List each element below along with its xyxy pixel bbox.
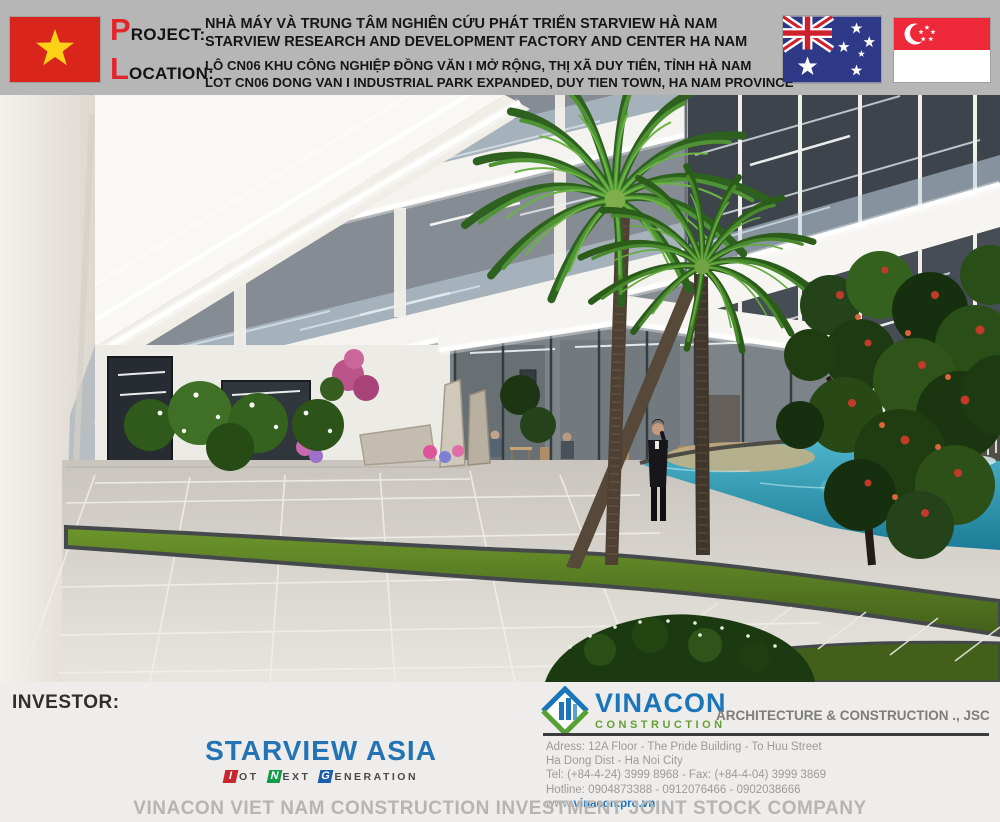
tagline-segment-generation: GENERATION <box>319 770 418 783</box>
project-label-initial: P <box>110 12 131 47</box>
starview-tagline: IOT NEXT GENERATION <box>171 770 471 783</box>
location-line-en: LOT CN06 DONG VAN I INDUSTRIAL PARK EXPA… <box>205 75 794 90</box>
project-title-en: STARVIEW RESEARCH AND DEVELOPMENT FACTOR… <box>205 34 747 50</box>
project-label: PROJECT: <box>110 12 206 48</box>
generation-initial-box: G <box>318 770 334 783</box>
contact-address1: Adress: 12A Floor - The Pride Building -… <box>546 740 826 754</box>
next-initial-box: N <box>266 770 282 783</box>
footer-bar: INVESTOR: STARVIEW ASIA IOT NEXT GENERAT… <box>0 682 1000 822</box>
company-type-label: ARCHITECTURE & CONSTRUCTION ., JSC <box>716 708 990 723</box>
project-title-vi: NHÀ MÁY VÀ TRUNG TÂM NGHIÊN CỨU PHÁT TRI… <box>205 16 717 32</box>
contact-address2: Ha Dong Dist - Ha Noi City <box>546 754 826 768</box>
location-label-rest: OCATION: <box>129 64 214 83</box>
tagline-segment-next: NEXT <box>268 770 311 783</box>
vinacon-name: VINACON <box>595 690 727 717</box>
investor-label: INVESTOR: <box>12 692 120 714</box>
location-line-vi: LÔ CN06 KHU CÔNG NGHIỆP ĐỒNG VĂN I MỞ RỘ… <box>205 58 751 73</box>
iot-initial-box: I <box>223 770 239 783</box>
generation-rest: ENERATION <box>334 771 418 783</box>
location-label: LOCATION: <box>110 51 214 87</box>
footer-divider <box>543 733 989 736</box>
company-name: VINACON VIET NAM CONSTRUCTION INVESTMENT… <box>0 798 1000 820</box>
starview-asia-wordmark: STARVIEW ASIA <box>171 735 471 767</box>
presentation-board: PROJECT: NHÀ MÁY VÀ TRUNG TÂM NGHIÊN CỨU… <box>0 0 1000 822</box>
iot-rest: OT <box>239 771 259 783</box>
vinacon-wordmark: VINACON CONSTRUCTION <box>595 686 727 731</box>
starview-asia-logo: STARVIEW ASIA IOT NEXT GENERATION <box>171 735 471 783</box>
vinacon-diamond-icon <box>540 686 590 736</box>
tagline-segment-iot: IOT <box>224 770 259 783</box>
contact-tel-fax: Tel: (+84-4-24) 3999 8968 - Fax: (+84-4-… <box>546 768 826 782</box>
vietnam-flag-icon <box>10 17 100 82</box>
contact-hotline: Hotline: 0904873388 - 0912076466 - 09020… <box>546 783 826 797</box>
header-bar: PROJECT: NHÀ MÁY VÀ TRUNG TÂM NGHIÊN CỨU… <box>0 0 1000 95</box>
singapore-flag-icon <box>894 18 990 82</box>
vinacon-logo: VINACON CONSTRUCTION <box>540 686 727 736</box>
project-label-rest: ROJECT: <box>131 25 206 44</box>
architectural-rendering <box>0 95 1000 682</box>
location-label-initial: L <box>110 51 129 86</box>
australia-flag-icon <box>783 16 881 83</box>
next-rest: EXT <box>283 771 311 783</box>
vinacon-construction-label: CONSTRUCTION <box>595 719 727 731</box>
